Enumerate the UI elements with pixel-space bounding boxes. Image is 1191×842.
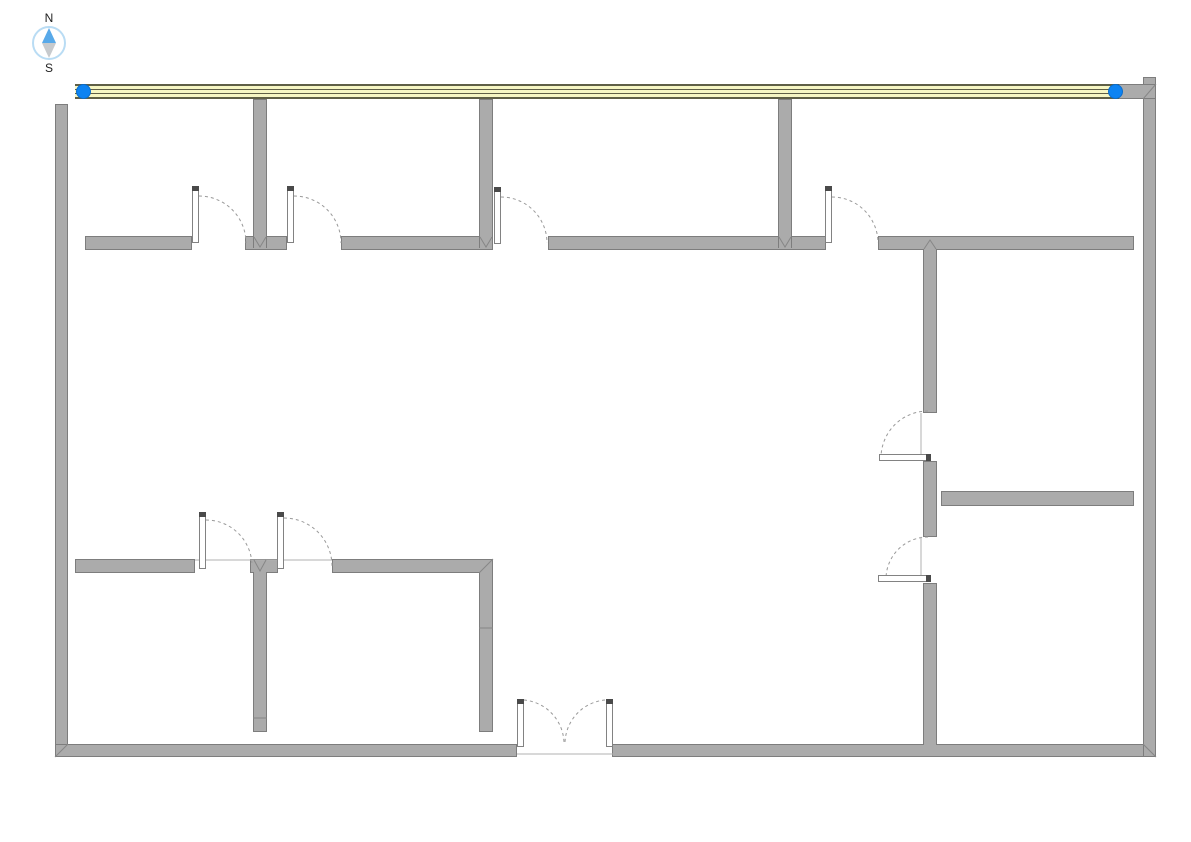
door-swing-arc (284, 518, 332, 566)
wall-lowerleft-vertical-d[interactable] (479, 572, 493, 732)
door-panel[interactable] (277, 512, 284, 569)
floor-plan-canvas: N S (0, 0, 1191, 842)
selection-handle-right[interactable] (1108, 84, 1123, 99)
wall-interior-right-vertical-middle[interactable] (923, 461, 937, 537)
door-swing-arc (886, 537, 928, 579)
compass-rose[interactable]: N S (30, 11, 68, 75)
door-swing-arc (199, 196, 246, 243)
compass-north-label: N (30, 11, 68, 25)
wall-stub-vertical-1[interactable] (253, 99, 267, 248)
door-panel[interactable] (287, 186, 294, 243)
door-panel[interactable] (878, 575, 931, 582)
wall-lowerleft-junction[interactable] (250, 559, 278, 573)
door-panel-cap (494, 187, 501, 192)
door-swing-arc (524, 700, 564, 744)
door-panel-cap (192, 186, 199, 191)
wall-corner-top-right[interactable] (1118, 84, 1156, 99)
double-door-left-panel[interactable] (517, 699, 524, 747)
double-door-right-panel[interactable] (606, 699, 613, 747)
selected-wall-stripe (75, 93, 1119, 94)
wall-interior-top-seg5[interactable] (878, 236, 1134, 250)
door-panel-cap (926, 575, 931, 582)
wall-interior-right-vertical-lower[interactable] (923, 583, 937, 745)
wall-exterior-bottom-left-segment[interactable] (55, 744, 517, 757)
wall-interior-top-seg3[interactable] (341, 236, 493, 250)
door-panel[interactable] (199, 512, 206, 569)
door-panel-cap (606, 699, 613, 704)
wall-exterior-top-selected[interactable] (75, 84, 1119, 99)
compass-needle-south-icon (42, 43, 56, 58)
door-swing-arc (206, 520, 252, 566)
door-panel[interactable] (494, 187, 501, 244)
door-panel-cap (926, 454, 931, 461)
wall-lowerleft-horizontal-a[interactable] (75, 559, 195, 573)
compass-needle-north-icon (42, 28, 56, 43)
door-swing-arc (501, 197, 547, 243)
selection-handle-left[interactable] (76, 84, 91, 99)
compass-south-label: S (30, 61, 68, 75)
door-panel-cap (199, 512, 206, 517)
door-panel[interactable] (825, 186, 832, 243)
wall-stub-vertical-2[interactable] (479, 99, 493, 248)
door-panel[interactable] (192, 186, 199, 243)
door-panel-cap (277, 512, 284, 517)
wall-exterior-left[interactable] (55, 104, 68, 757)
door-panel-cap (287, 186, 294, 191)
door-swing-overlay (0, 0, 1191, 842)
door-swing-arc (294, 196, 341, 243)
door-panel-cap (825, 186, 832, 191)
door-swing-arc (881, 411, 928, 458)
door-panel-cap (517, 699, 524, 704)
wall-interior-right-horizontal[interactable] (941, 491, 1134, 506)
wall-exterior-right[interactable] (1143, 77, 1156, 757)
wall-exterior-bottom-right-segment[interactable] (612, 744, 1156, 757)
door-swing-arc (565, 700, 605, 744)
wall-interior-top-seg1[interactable] (85, 236, 192, 250)
compass-icon (32, 26, 66, 60)
selected-wall-stripe (75, 89, 1119, 90)
wall-interior-right-vertical-upper[interactable] (923, 249, 937, 413)
wall-lowerleft-horizontal-b[interactable] (332, 559, 493, 573)
wall-stub-vertical-3[interactable] (778, 99, 792, 248)
door-swing-arc (832, 197, 878, 243)
wall-lowerleft-vertical-c[interactable] (253, 572, 267, 732)
door-panel[interactable] (879, 454, 931, 461)
